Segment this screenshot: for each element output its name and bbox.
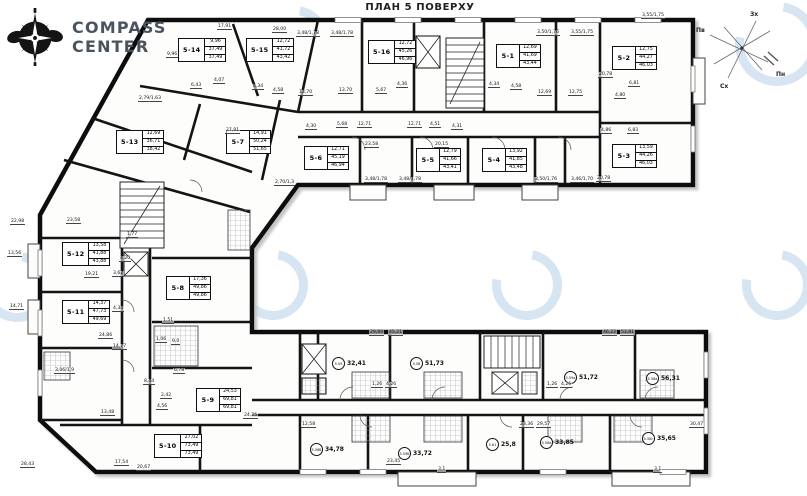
plan-title: ПЛАН 5 ПОВЕРХУ — [300, 2, 540, 13]
compass-directions: Зх Пв Сх Пн — [688, 4, 803, 92]
elevator-top-icon — [416, 36, 440, 68]
compass-center-logo: COMPASS CENTER — [6, 8, 167, 66]
compass-rose-icon — [6, 8, 64, 66]
stairs-top — [446, 38, 484, 108]
stairs-bottom — [484, 336, 540, 394]
logo-line-1: COMPASS — [72, 18, 167, 37]
floor-plan-page: ПЛАН 5 ПОВЕРХУ COMPASS CENTER — [0, 0, 807, 496]
compass-label-west: Зх — [750, 11, 758, 18]
compass-label-north: Пн — [776, 71, 785, 78]
floor-plan — [0, 0, 807, 496]
compass-label-east: Сх — [720, 83, 728, 90]
elevator-bottom-left-icon — [302, 344, 326, 394]
logo-line-2: CENTER — [72, 37, 167, 56]
compass-label-south: Пв — [696, 27, 705, 34]
